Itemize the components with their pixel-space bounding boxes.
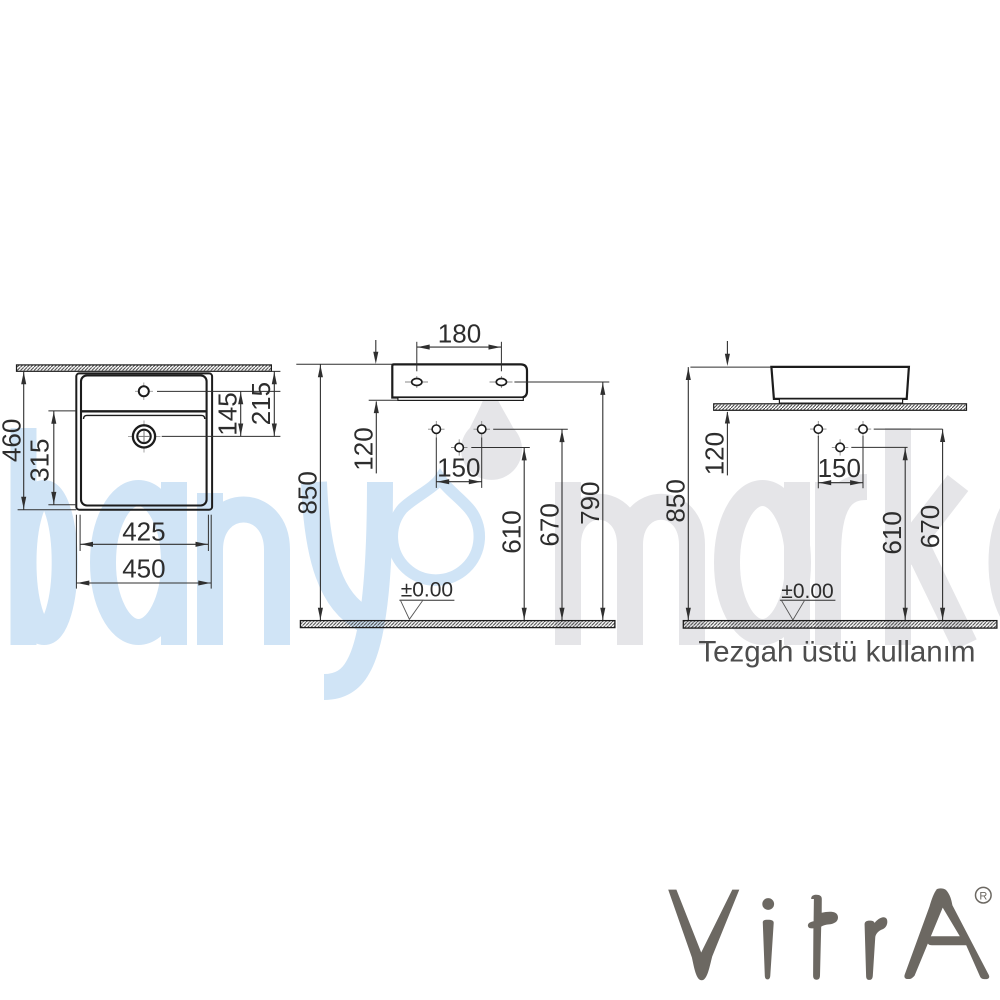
svg-text:215: 215: [246, 382, 276, 425]
svg-text:150: 150: [437, 453, 480, 483]
svg-text:180: 180: [438, 318, 481, 348]
svg-text:315: 315: [25, 439, 55, 482]
svg-text:R: R: [979, 890, 987, 902]
svg-text:±0.00: ±0.00: [401, 579, 453, 602]
svg-text:145: 145: [213, 392, 243, 435]
svg-text:450: 450: [122, 554, 165, 584]
svg-text:120: 120: [348, 427, 378, 470]
svg-text:670: 670: [535, 503, 565, 546]
svg-text:425: 425: [122, 517, 165, 547]
svg-text:850: 850: [293, 471, 323, 514]
svg-text:460: 460: [0, 419, 27, 462]
svg-text:120: 120: [700, 432, 730, 475]
svg-text:Tezgah üstü kullanım: Tezgah üstü kullanım: [698, 636, 975, 669]
svg-text:150: 150: [818, 453, 861, 483]
svg-text:670: 670: [915, 505, 945, 548]
svg-text:610: 610: [877, 511, 907, 554]
svg-text:790: 790: [575, 482, 605, 525]
svg-text:610: 610: [496, 510, 526, 553]
svg-text:850: 850: [661, 479, 691, 522]
svg-text:±0.00: ±0.00: [781, 580, 833, 603]
